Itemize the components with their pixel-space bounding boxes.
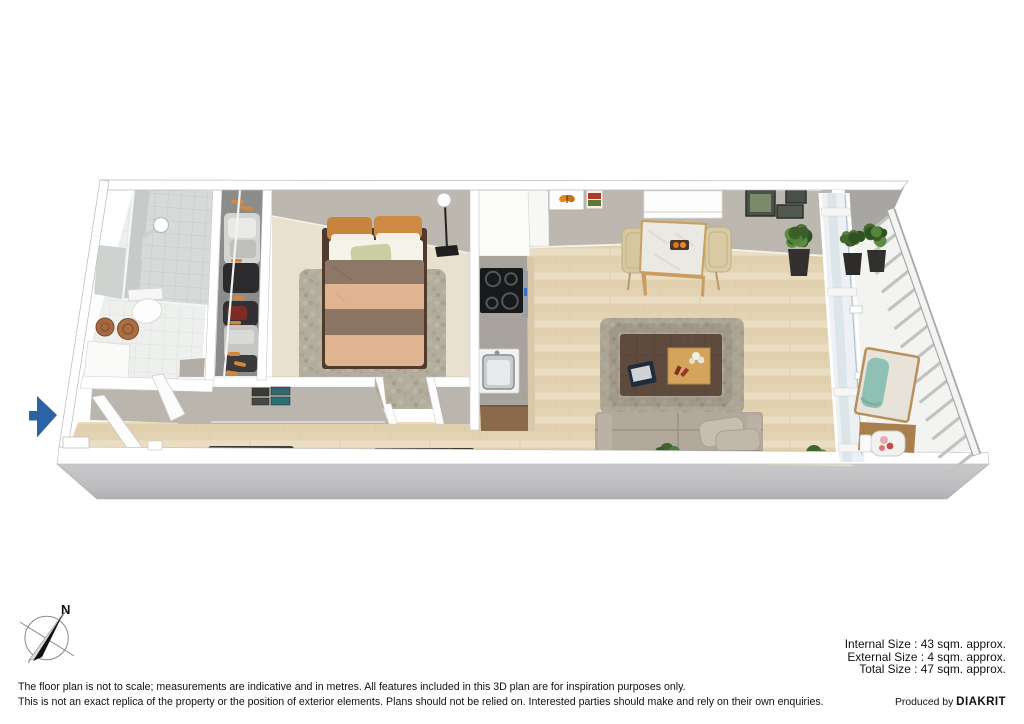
svg-text:N: N: [61, 602, 70, 617]
